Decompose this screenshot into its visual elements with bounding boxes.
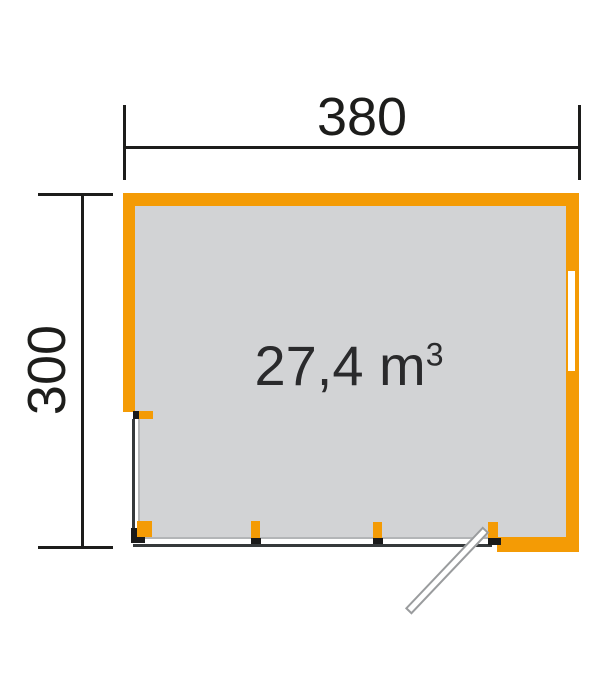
height-dimension-tick-top — [38, 193, 113, 196]
left-wall-end-cap — [139, 411, 153, 419]
front-post-corner — [137, 521, 152, 537]
corner-black-mark-horizontal — [131, 537, 145, 543]
front-post-2 — [373, 522, 382, 538]
volume-label: 27,4 m3 — [199, 338, 499, 398]
volume-superscript: 3 — [426, 336, 444, 372]
width-dimension-tick-right — [578, 105, 581, 180]
width-dimension-tick-left — [123, 105, 126, 180]
wall-right — [566, 193, 579, 552]
wall-bottom-right — [497, 537, 579, 552]
volume-value: 27,4 m — [255, 334, 426, 397]
wall-left — [123, 193, 135, 412]
height-dimension-label: 300 — [22, 310, 72, 430]
height-dimension-line — [81, 193, 84, 549]
door-hinge-post-base — [488, 538, 501, 545]
wall-top — [123, 193, 579, 206]
width-dimension-line — [123, 146, 581, 149]
front-post-1-base — [251, 538, 261, 544]
height-dimension-tick-bottom — [38, 546, 113, 549]
front-post-2-base — [373, 538, 383, 544]
front-post-1 — [251, 521, 260, 538]
floorplan-diagram: 380 300 27,4 m3 — [0, 0, 600, 700]
width-dimension-label: 380 — [262, 90, 462, 144]
glazed-wall-bottom — [133, 537, 492, 547]
window-right-slot — [568, 271, 575, 371]
